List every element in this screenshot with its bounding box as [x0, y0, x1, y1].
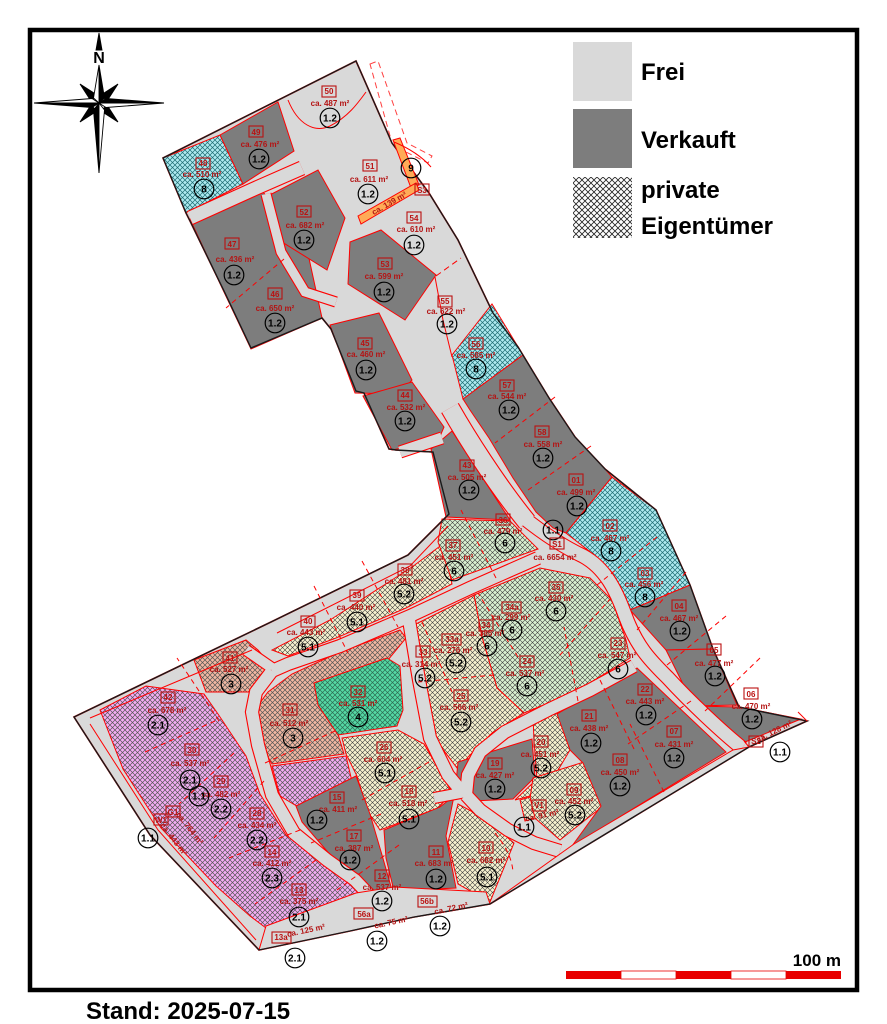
svg-text:35: 35: [552, 583, 561, 592]
svg-text:12: 12: [378, 872, 387, 881]
svg-text:56b: 56b: [420, 897, 434, 906]
svg-text:5.2: 5.2: [454, 718, 468, 729]
svg-text:22: 22: [641, 685, 650, 694]
svg-text:6: 6: [553, 607, 559, 618]
svg-text:5.2: 5.2: [449, 659, 463, 670]
svg-text:04: 04: [675, 602, 684, 611]
svg-text:1.2: 1.2: [310, 816, 324, 827]
svg-text:06: 06: [747, 690, 756, 699]
svg-text:50: 50: [325, 87, 334, 96]
svg-text:57: 57: [503, 381, 512, 390]
svg-text:17: 17: [350, 832, 359, 841]
svg-text:2.1: 2.1: [292, 913, 306, 924]
svg-text:29: 29: [217, 777, 226, 786]
svg-text:1.2: 1.2: [252, 155, 266, 166]
svg-text:1.2: 1.2: [667, 754, 681, 765]
svg-text:25: 25: [457, 692, 466, 701]
svg-text:1.1: 1.1: [141, 834, 155, 845]
svg-text:48: 48: [199, 159, 208, 168]
svg-text:5.2: 5.2: [397, 590, 411, 601]
svg-text:6: 6: [451, 567, 457, 578]
svg-text:2.3: 2.3: [265, 874, 279, 885]
svg-text:51: 51: [366, 162, 375, 171]
svg-text:ca. 537 m²: ca. 537 m²: [171, 759, 210, 768]
svg-text:ca. 314 m²: ca. 314 m²: [402, 660, 441, 669]
svg-text:Eigentümer: Eigentümer: [641, 213, 773, 240]
svg-text:8: 8: [642, 593, 648, 604]
svg-text:1.2: 1.2: [429, 875, 443, 886]
svg-text:2.1: 2.1: [288, 954, 302, 965]
svg-text:1.2: 1.2: [613, 782, 627, 793]
svg-text:31: 31: [286, 706, 295, 715]
svg-text:1.2: 1.2: [536, 454, 550, 465]
svg-text:5.1: 5.1: [301, 643, 315, 654]
svg-text:40: 40: [304, 617, 313, 626]
svg-text:ca. 544 m²: ca. 544 m²: [488, 392, 527, 401]
svg-text:5.2: 5.2: [534, 764, 548, 775]
svg-text:8: 8: [473, 365, 479, 376]
svg-text:28: 28: [253, 809, 262, 818]
svg-text:46: 46: [271, 290, 280, 299]
svg-text:1.2: 1.2: [433, 922, 447, 933]
svg-text:ca. 610 m²: ca. 610 m²: [397, 225, 436, 234]
svg-text:Verkauft: Verkauft: [641, 127, 736, 154]
svg-text:39: 39: [353, 591, 362, 600]
svg-text:43: 43: [463, 461, 472, 470]
svg-text:ca. 476 m²: ca. 476 m²: [241, 140, 280, 149]
svg-text:6: 6: [484, 642, 490, 653]
svg-text:ca. 375 m²: ca. 375 m²: [280, 897, 319, 906]
svg-text:07: 07: [670, 727, 679, 736]
svg-text:Stand: 2025-07-15: Stand: 2025-07-15: [86, 998, 290, 1024]
svg-text:1.2: 1.2: [570, 502, 584, 513]
svg-text:ca. 487 m²: ca. 487 m²: [311, 99, 350, 108]
svg-text:49: 49: [252, 128, 261, 137]
svg-text:1.2: 1.2: [639, 711, 653, 722]
svg-text:ca. 682 m²: ca. 682 m²: [467, 856, 506, 865]
svg-text:1.2: 1.2: [227, 271, 241, 282]
svg-text:1.2: 1.2: [488, 785, 502, 796]
svg-text:100 m: 100 m: [793, 951, 841, 970]
svg-text:ca. 683 m²: ca. 683 m²: [415, 859, 454, 868]
svg-text:1.2: 1.2: [673, 627, 687, 638]
svg-text:1.2: 1.2: [343, 856, 357, 867]
svg-text:11: 11: [432, 848, 441, 857]
svg-text:8: 8: [201, 185, 207, 196]
svg-text:1.2: 1.2: [359, 366, 373, 377]
svg-text:03: 03: [641, 569, 650, 578]
svg-text:1.2: 1.2: [745, 715, 759, 726]
svg-text:ca. 440 m²: ca. 440 m²: [337, 603, 376, 612]
svg-text:1.1: 1.1: [517, 823, 531, 834]
svg-text:14: 14: [268, 848, 277, 857]
svg-text:36: 36: [499, 516, 508, 525]
svg-text:5.1: 5.1: [378, 769, 392, 780]
svg-text:6: 6: [509, 626, 515, 637]
svg-text:42: 42: [164, 693, 173, 702]
svg-text:58: 58: [538, 428, 547, 437]
svg-text:ca. 518 m²: ca. 518 m²: [389, 799, 428, 808]
svg-text:ca. 434 m²: ca. 434 m²: [238, 821, 277, 830]
svg-text:ca. 510 m²: ca. 510 m²: [183, 170, 222, 179]
svg-text:ca. 411 m²: ca. 411 m²: [319, 805, 358, 814]
svg-text:ca. 443 m²: ca. 443 m²: [287, 628, 326, 637]
svg-text:8: 8: [608, 547, 614, 558]
svg-text:23: 23: [614, 639, 623, 648]
svg-text:N: N: [93, 50, 105, 67]
svg-text:ca. 436 m²: ca. 436 m²: [216, 255, 255, 264]
svg-text:4: 4: [355, 713, 361, 724]
svg-text:ca. 438 m²: ca. 438 m²: [570, 724, 609, 733]
svg-text:05: 05: [710, 646, 719, 655]
svg-text:18: 18: [405, 787, 414, 796]
svg-text:19: 19: [491, 759, 500, 768]
svg-text:21: 21: [585, 712, 594, 721]
svg-text:1.1: 1.1: [773, 748, 787, 759]
svg-text:ca. 604 m²: ca. 604 m²: [364, 755, 403, 764]
svg-text:1.2: 1.2: [398, 417, 412, 428]
svg-text:5.1: 5.1: [402, 815, 416, 826]
svg-text:1.2: 1.2: [377, 288, 391, 299]
svg-text:5.2: 5.2: [418, 674, 432, 685]
svg-text:1.2: 1.2: [407, 241, 421, 252]
svg-text:ca. 6654 m²: ca. 6654 m²: [533, 553, 576, 562]
svg-text:15: 15: [333, 793, 342, 802]
svg-text:ca. 527 m²: ca. 527 m²: [210, 665, 249, 674]
svg-text:9: 9: [408, 164, 414, 175]
svg-text:S1: S1: [552, 540, 562, 549]
svg-text:ca. 650 m²: ca. 650 m²: [256, 304, 295, 313]
svg-text:55: 55: [441, 297, 450, 306]
svg-text:26: 26: [380, 743, 389, 752]
svg-text:1.2: 1.2: [323, 114, 337, 125]
svg-text:44: 44: [401, 391, 410, 400]
svg-text:2.2: 2.2: [250, 836, 264, 847]
svg-text:1.2: 1.2: [584, 739, 598, 750]
svg-text:24: 24: [523, 657, 532, 666]
svg-text:1.2: 1.2: [440, 320, 454, 331]
svg-text:1.1: 1.1: [546, 526, 560, 537]
svg-text:ca. 512 m²: ca. 512 m²: [270, 719, 309, 728]
svg-text:6: 6: [502, 539, 508, 550]
svg-text:1.2: 1.2: [462, 486, 476, 497]
svg-text:08: 08: [616, 756, 625, 765]
svg-text:ca. 479 m²: ca. 479 m²: [484, 527, 523, 536]
svg-text:ca. 682 m²: ca. 682 m²: [286, 221, 325, 230]
svg-text:20: 20: [537, 738, 546, 747]
svg-text:ca. 412 m²: ca. 412 m²: [253, 859, 292, 868]
svg-text:1.2: 1.2: [370, 937, 384, 948]
svg-text:13: 13: [295, 886, 304, 895]
svg-text:10: 10: [482, 844, 491, 853]
svg-text:6: 6: [615, 665, 621, 676]
svg-text:09: 09: [570, 786, 579, 795]
svg-text:1.2: 1.2: [297, 236, 311, 247]
svg-text:ca. 566 m²: ca. 566 m²: [440, 703, 479, 712]
svg-text:2.2: 2.2: [214, 805, 228, 816]
svg-text:1.2: 1.2: [502, 406, 516, 417]
svg-text:ca. 599 m²: ca. 599 m²: [365, 272, 404, 281]
svg-text:S3: S3: [417, 186, 427, 195]
svg-text:6: 6: [524, 682, 530, 693]
svg-text:3: 3: [228, 680, 234, 691]
svg-text:1.2: 1.2: [268, 319, 282, 330]
svg-text:ca. 532 m²: ca. 532 m²: [387, 403, 426, 412]
svg-text:private: private: [641, 177, 720, 204]
svg-text:56a: 56a: [357, 910, 371, 919]
svg-text:33a: 33a: [445, 635, 459, 644]
svg-text:ca. 460 m²: ca. 460 m²: [347, 350, 386, 359]
svg-text:2.1: 2.1: [151, 721, 165, 732]
svg-text:1.1: 1.1: [192, 792, 206, 803]
svg-text:56: 56: [472, 340, 481, 349]
svg-text:3: 3: [290, 734, 296, 745]
svg-text:1.2: 1.2: [361, 190, 375, 201]
svg-text:ca. 611 m²: ca. 611 m²: [350, 175, 389, 184]
svg-text:52: 52: [300, 208, 309, 217]
svg-text:ca. 678 m²: ca. 678 m²: [148, 706, 187, 715]
svg-text:53: 53: [381, 260, 390, 269]
svg-text:5.2: 5.2: [568, 811, 582, 822]
svg-text:34a: 34a: [505, 603, 519, 612]
svg-text:01: 01: [572, 476, 581, 485]
svg-text:5.1: 5.1: [350, 618, 364, 629]
svg-text:45: 45: [361, 339, 370, 348]
svg-text:5.1: 5.1: [480, 873, 494, 884]
svg-text:47: 47: [228, 240, 237, 249]
svg-text:30: 30: [188, 746, 197, 755]
svg-text:33: 33: [419, 648, 428, 657]
svg-text:Frei: Frei: [641, 59, 685, 86]
svg-text:1.2: 1.2: [375, 897, 389, 908]
svg-text:2.1: 2.1: [183, 776, 197, 787]
svg-text:38: 38: [401, 566, 410, 575]
svg-text:41: 41: [226, 654, 235, 663]
svg-text:1.2: 1.2: [708, 672, 722, 683]
svg-text:54: 54: [410, 214, 419, 223]
svg-text:37: 37: [449, 541, 458, 550]
svg-text:02: 02: [606, 522, 615, 531]
svg-text:V1: V1: [534, 801, 544, 810]
svg-text:32: 32: [354, 688, 363, 697]
